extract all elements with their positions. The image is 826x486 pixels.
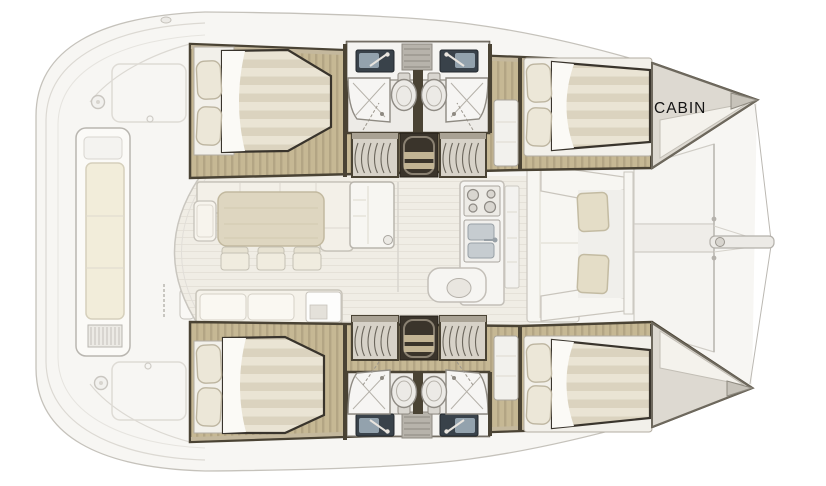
foredeck-pin-top — [712, 217, 717, 222]
pillow — [196, 344, 222, 383]
starboard-bathrooms — [347, 362, 489, 438]
dining-chair — [221, 247, 249, 270]
door-threshold — [505, 186, 519, 288]
companionway-hatch — [400, 133, 438, 177]
port-wardrobe — [494, 100, 518, 166]
aft-bench-shelf — [84, 137, 122, 159]
companionway-stairs — [440, 133, 486, 177]
pillow — [526, 343, 552, 382]
pillow — [196, 60, 222, 99]
starboard-forward-cabin-bed — [524, 336, 652, 432]
shelf-unit — [402, 44, 432, 70]
bow-cabin-label: CABIN — [654, 100, 706, 117]
sink — [356, 50, 394, 72]
pillow — [196, 106, 222, 145]
end-chair — [194, 201, 216, 241]
shelf-unit — [402, 412, 432, 438]
aft-bench-cushion — [86, 163, 124, 319]
dining-table — [218, 192, 324, 246]
floor-plan-svg: CABIN — [0, 0, 826, 486]
foredeck-pin-bottom — [712, 256, 717, 261]
port-aft-cabin-bed — [194, 47, 331, 155]
sink — [440, 50, 478, 72]
pillow — [526, 385, 552, 424]
companionway-stairs — [440, 316, 486, 360]
catamaran-floor-plan: CABIN — [0, 0, 826, 486]
pillow — [526, 63, 552, 102]
aft-bench-vent — [88, 325, 122, 347]
companionway-hatch — [400, 316, 438, 360]
port-bathrooms — [347, 42, 489, 133]
stove — [464, 186, 500, 216]
sideboard-cabinet — [350, 182, 394, 248]
deck-round-hatch-bottom — [95, 377, 108, 390]
sink — [356, 414, 394, 436]
pillow — [196, 387, 222, 426]
galley-stool-counter — [428, 268, 486, 302]
shower — [348, 78, 390, 122]
deck-handle — [161, 17, 171, 23]
sink — [440, 414, 478, 436]
foredeck-panel-mid — [634, 224, 714, 252]
bowsprit — [710, 236, 774, 248]
starboard-aft-cabin-bed — [194, 337, 324, 433]
shower — [446, 78, 488, 122]
pillow — [526, 107, 552, 146]
starboard-hull — [190, 316, 752, 442]
forward-cockpit — [527, 164, 633, 322]
fwd-cockpit-edge — [624, 172, 633, 314]
fwd-seat-cushion-2 — [577, 254, 609, 294]
deck-round-hatch-top — [92, 96, 105, 109]
dining-chair — [293, 247, 321, 270]
companionway-stairs — [352, 133, 398, 177]
companionway-stairs — [352, 316, 398, 360]
port-forward-cabin-bed — [524, 58, 652, 156]
fwd-seat-cushion-1 — [577, 192, 609, 232]
dining-chair — [257, 247, 285, 270]
starboard-wardrobe — [494, 336, 518, 400]
salon-bench — [196, 290, 342, 324]
galley-sink — [464, 220, 500, 262]
